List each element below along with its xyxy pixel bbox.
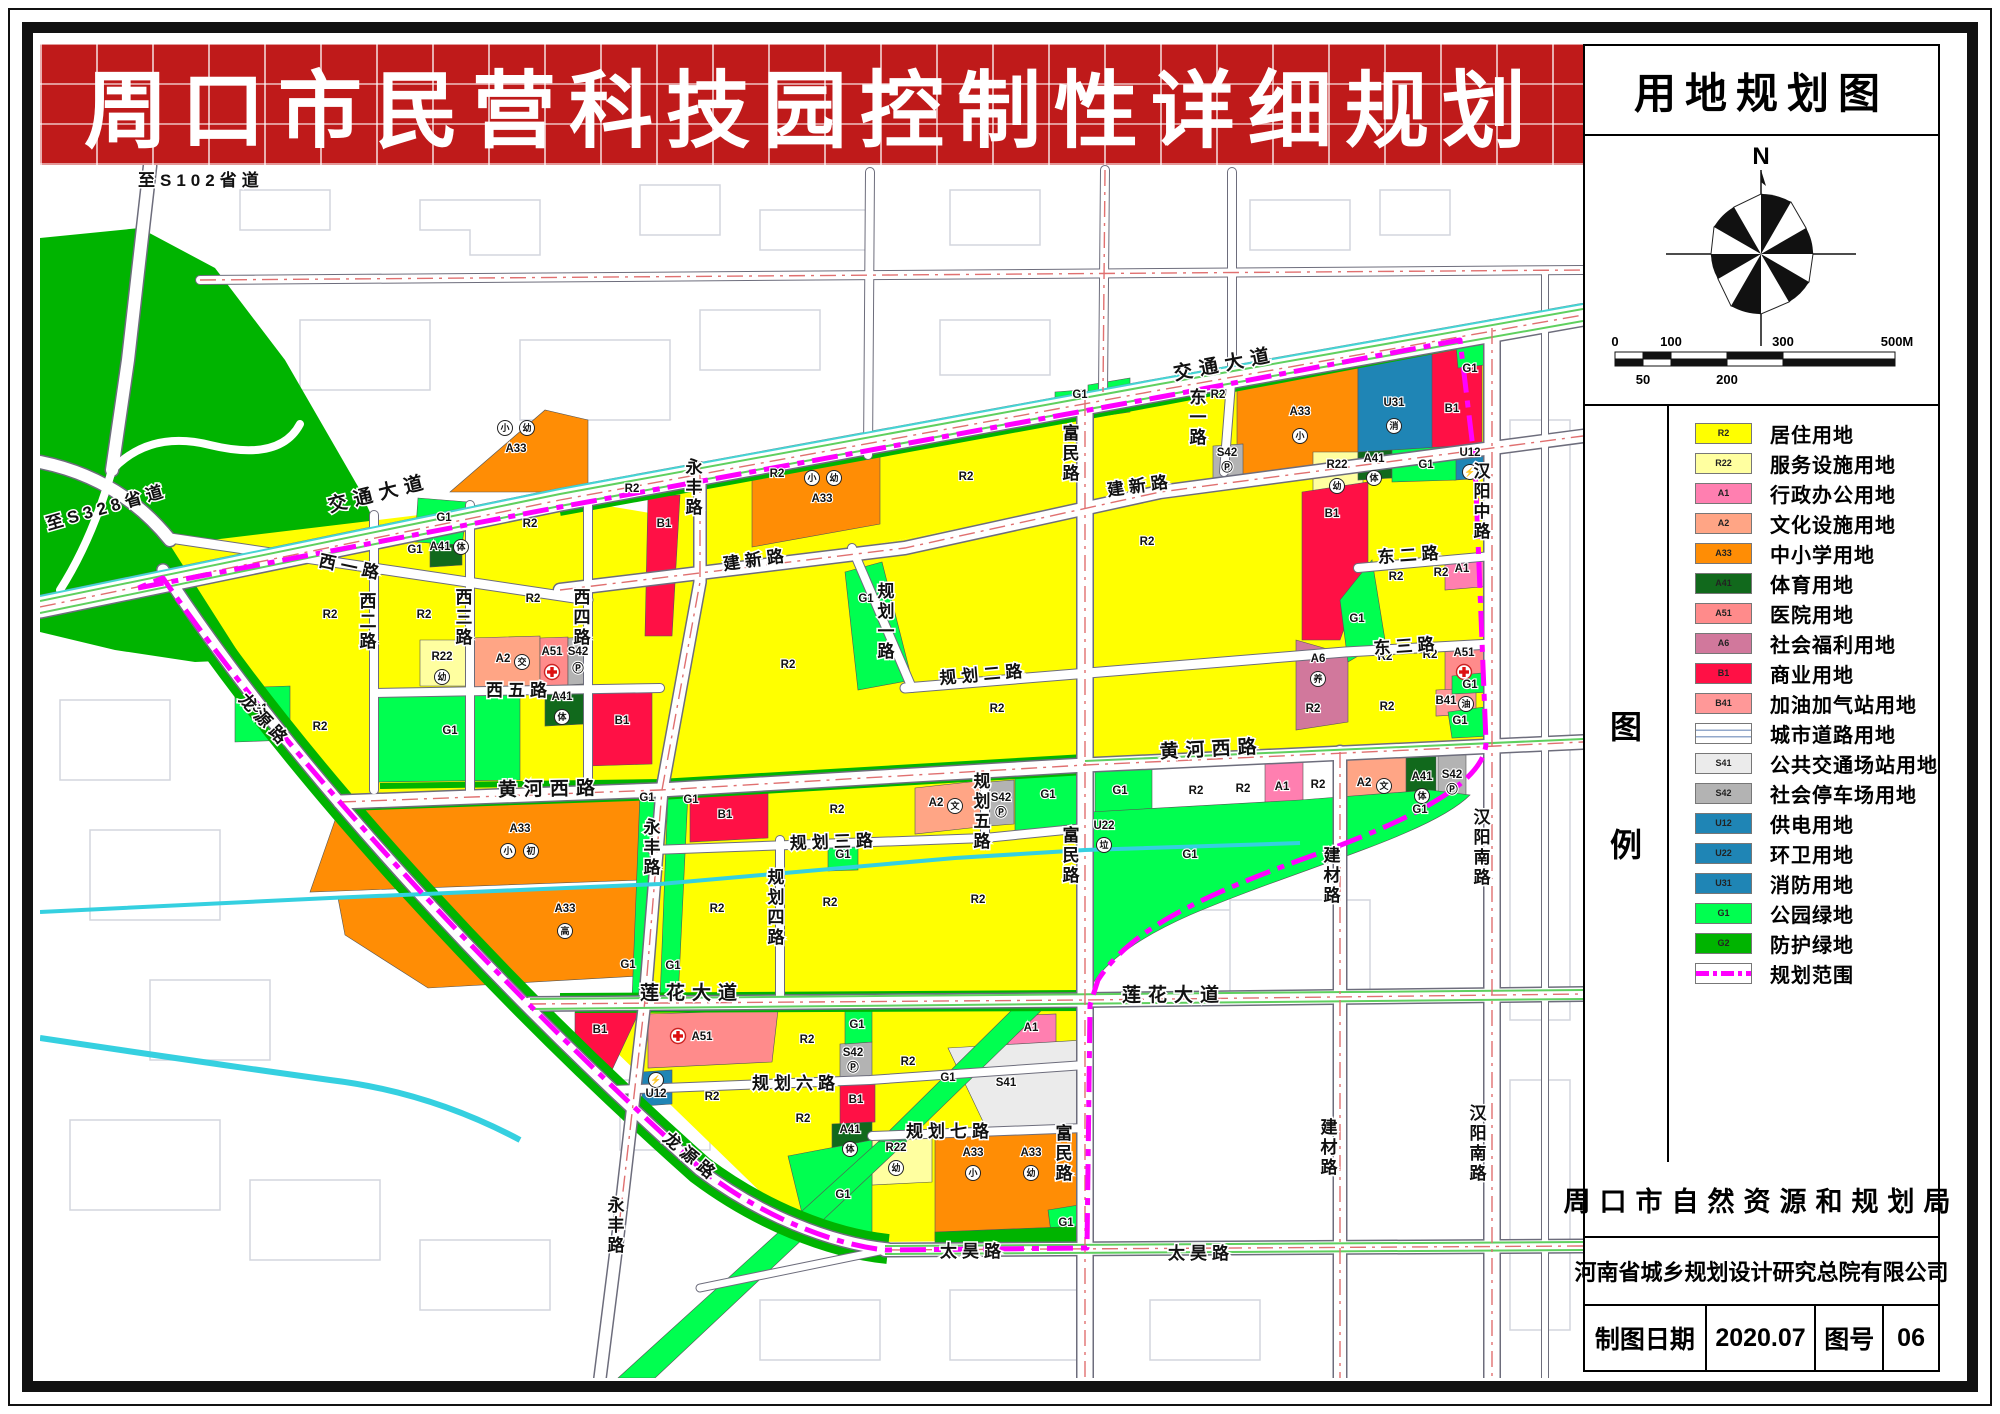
svg-text:A1: A1 [1275,781,1290,793]
legend-row: S41 公共交通场站用地 [1695,748,1938,778]
legend-swatch: A2 [1695,513,1752,534]
svg-text:Ⓟ: Ⓟ [847,1060,859,1074]
svg-text:规划一路: 规划一路 [875,582,895,662]
svg-text:A2: A2 [1357,777,1372,789]
svg-text:幼: 幼 [437,671,446,682]
svg-text:G1: G1 [1040,789,1056,801]
svg-text:体: 体 [1369,472,1379,483]
svg-text:小: 小 [499,422,509,433]
svg-text:S42: S42 [1217,447,1237,459]
svg-text:西五路: 西五路 [486,680,552,700]
legend-label: 居住用地 [1770,419,1854,448]
svg-text:体: 体 [1417,790,1427,801]
svg-text:R2: R2 [1140,536,1155,548]
svg-text:小: 小 [502,845,512,856]
legend-row: A1 行政办公用地 [1695,478,1938,508]
svg-text:富民路: 富民路 [1053,1123,1073,1184]
legend-swatch: U31 [1695,873,1752,894]
svg-text:R2: R2 [526,593,541,605]
planning-map-page: 周口市民营科技园控制性详细规划 [0,0,2000,1414]
svg-text:R2: R2 [523,518,538,530]
compass-scale-graphic: N 0 100 300 500M [1585,136,1938,402]
svg-text:200: 200 [1716,372,1738,387]
legend-label: 中小学用地 [1770,539,1875,568]
legend-label: 文化设施用地 [1770,509,1896,538]
svg-text:50: 50 [1636,372,1650,387]
svg-text:U22: U22 [1093,820,1114,832]
svg-text:B1: B1 [615,715,630,727]
svg-text:永丰路: 永丰路 [683,457,704,518]
svg-text:G1: G1 [940,1072,956,1084]
legend-title-vertical: 图 例 [1585,406,1669,1162]
svg-text:Ⓟ: Ⓟ [1221,460,1233,474]
legend-label: 供电用地 [1770,809,1854,838]
legend-code: R2 [1718,428,1730,438]
svg-text:A2: A2 [496,653,511,665]
legend-row: U22 环卫用地 [1695,838,1938,868]
svg-text:永丰路: 永丰路 [605,1195,626,1256]
legend-code: B41 [1715,698,1732,708]
legend-row: A33 中小学用地 [1695,538,1938,568]
titleblock-footer: 制图日期 2020.07 图号 06 [1585,1306,1938,1370]
svg-text:R2: R2 [417,609,432,621]
svg-text:R2: R2 [1389,571,1404,583]
legend-swatch: A51 [1695,603,1752,624]
legend-label: 公园绿地 [1770,899,1854,928]
legend-label: 社会停车场用地 [1770,779,1917,808]
scale-bar: 0 100 300 500M [1611,334,1913,387]
svg-text:B1: B1 [1445,403,1460,415]
legend-title-char-2: 例 [1610,820,1642,866]
svg-text:U12: U12 [645,1088,666,1100]
legend-code: U12 [1715,818,1732,828]
svg-text:U31: U31 [1383,397,1405,409]
svg-text:500M: 500M [1881,334,1914,349]
legend-row: A51 医院用地 [1695,598,1938,628]
svg-text:R2: R2 [1236,783,1251,795]
legend-row: G2 防护绿地 [1695,928,1938,958]
svg-text:幼: 幼 [1026,1167,1035,1178]
legend-code: A41 [1715,578,1732,588]
legend-label: 商业用地 [1770,659,1854,688]
svg-text:交: 交 [517,656,526,667]
svg-text:A41: A41 [551,691,573,703]
legend-row: 城市道路用地 [1695,718,1938,748]
legend-code: A1 [1718,488,1730,498]
svg-text:Ⓟ: Ⓟ [995,805,1007,819]
legend-row: S42 社会停车场用地 [1695,778,1938,808]
svg-text:规划五路: 规划五路 [971,772,991,852]
svg-text:富民路: 富民路 [1060,825,1080,886]
svg-text:A33: A33 [962,1147,983,1159]
page-title: 周口市民营科技园控制性详细规划 [84,44,1539,165]
legend-label: 公共交通场站用地 [1770,749,1938,778]
svg-text:A33: A33 [554,903,575,915]
legend-label: 环卫用地 [1770,839,1854,868]
legend-code: S42 [1715,788,1731,798]
svg-text:汉阳中路: 汉阳中路 [1471,462,1491,542]
compass-rose-icon [1666,170,1856,346]
svg-text:G1: G1 [1452,715,1468,727]
legend-swatch: U12 [1695,813,1752,834]
legend-code: A6 [1718,638,1730,648]
svg-text:A51: A51 [541,646,563,658]
legend-swatch: S41 [1695,753,1752,774]
legend-row: R22 服务设施用地 [1695,448,1938,478]
svg-text:A33: A33 [811,493,832,505]
svg-text:幼: 幼 [829,472,838,483]
svg-text:S41: S41 [996,1077,1017,1089]
legend-label: 服务设施用地 [1770,449,1896,478]
svg-text:建材路: 建材路 [1318,1117,1338,1178]
svg-text:G1: G1 [1058,1217,1074,1229]
svg-text:R2: R2 [800,1034,815,1046]
authority-name: 周口市自然资源和规划局 [1585,1162,1938,1238]
svg-text:A33: A33 [505,443,526,455]
svg-text:A41: A41 [429,541,451,553]
svg-text:R2: R2 [1189,785,1204,797]
legend-row: A41 体育用地 [1695,568,1938,598]
svg-text:规划四路: 规划四路 [765,868,785,948]
legend-label: 行政办公用地 [1770,479,1896,508]
svg-text:莲花大道: 莲花大道 [1122,983,1226,1006]
svg-text:G1: G1 [1182,849,1198,861]
svg-text:R2: R2 [1211,389,1226,401]
svg-text:A51: A51 [691,1031,713,1043]
svg-text:G1: G1 [436,512,452,524]
svg-text:体: 体 [845,1143,855,1154]
svg-text:幼: 幼 [891,1162,900,1173]
svg-text:G1: G1 [835,1189,851,1201]
legend-swatch: B41 [1695,693,1752,714]
svg-text:0: 0 [1611,334,1618,349]
svg-text:R2: R2 [313,721,328,733]
svg-text:G1: G1 [1462,363,1478,375]
legend-row: G1 公园绿地 [1695,898,1938,928]
svg-text:S42: S42 [991,792,1011,804]
legend-swatch: R2 [1695,423,1752,444]
legend-label: 消防用地 [1770,869,1854,898]
svg-text:G1: G1 [1462,679,1478,691]
legend-row: R2 居住用地 [1695,418,1938,448]
legend-label: 社会福利用地 [1770,629,1896,658]
svg-text:太昊路: 太昊路 [940,1241,1006,1261]
svg-text:G1: G1 [1418,459,1434,471]
legend-swatch: R22 [1695,453,1752,474]
svg-text:养: 养 [1312,673,1322,684]
svg-text:R2: R2 [830,804,845,816]
svg-text:体: 体 [557,711,567,722]
svg-text:G1: G1 [858,593,874,605]
date-value: 2020.07 [1705,1306,1815,1370]
svg-text:A33: A33 [509,823,530,835]
svg-text:A6: A6 [1311,653,1326,665]
landuse-map: G1A41体R2B1小幼A33R2R2小幼A33R2G1R2A33小S42ⓅR2… [40,165,1583,1378]
svg-text:R2: R2 [796,1113,811,1125]
svg-text:B1: B1 [1325,508,1340,520]
side-panel: 用地规划图 N 0 100 [1583,44,1940,1372]
svg-text:文: 文 [1378,780,1389,791]
svg-text:小: 小 [1294,430,1304,441]
legend-label: 规划范围 [1770,959,1854,988]
svg-text:小: 小 [806,472,816,483]
sheet-label: 图号 [1814,1306,1882,1370]
legend-code: U22 [1715,848,1732,858]
legend-label: 防护绿地 [1770,929,1854,958]
compass-scale-box: N 0 100 300 500M [1585,136,1938,406]
svg-text:S42: S42 [843,1047,863,1059]
svg-text:永丰路: 永丰路 [641,817,662,878]
svg-text:U12: U12 [1459,447,1480,459]
svg-text:东一路: 东一路 [1187,387,1207,448]
svg-text:汉阳南路: 汉阳南路 [1471,808,1491,888]
legend-swatch: A41 [1695,573,1752,594]
legend-code: G1 [1717,908,1729,918]
legend-row: B41 加油加气站用地 [1695,688,1938,718]
legend-row: A2 文化设施用地 [1695,508,1938,538]
svg-text:富民路: 富民路 [1060,423,1080,484]
map-area: G1A41体R2B1小幼A33R2R2小幼A33R2G1R2A33小S42ⓅR2… [40,165,1583,1378]
legend-code: A2 [1718,518,1730,528]
svg-text:R22: R22 [1326,459,1347,471]
date-label: 制图日期 [1585,1306,1705,1370]
svg-text:R2: R2 [823,897,838,909]
svg-text:G1: G1 [620,959,636,971]
legend-swatch: A6 [1695,633,1752,654]
svg-text:G1: G1 [407,544,423,556]
svg-text:西三路: 西三路 [453,588,473,648]
svg-text:R2: R2 [705,1091,720,1103]
legend-label: 体育用地 [1770,569,1854,598]
legend-swatch: A1 [1695,483,1752,504]
north-label: N [1752,143,1769,170]
svg-text:Ⓟ: Ⓟ [572,661,584,675]
legend-swatch [1695,963,1752,984]
svg-text:体: 体 [456,541,466,552]
svg-text:文: 文 [949,800,960,811]
legend-swatch: G1 [1695,903,1752,924]
svg-text:B1: B1 [657,518,672,530]
svg-text:至S102省道: 至S102省道 [138,170,264,190]
legend-row: 规划范围 [1695,958,1938,988]
svg-text:建材路: 建材路 [1321,845,1341,906]
svg-text:G1: G1 [665,960,681,972]
svg-text:A51: A51 [1453,647,1475,659]
legend-swatch: A33 [1695,543,1752,564]
svg-text:B41: B41 [1435,695,1457,707]
svg-text:西二路: 西二路 [357,592,377,652]
svg-text:G1: G1 [1072,389,1088,401]
legend-code: R22 [1715,458,1732,468]
svg-text:300: 300 [1772,334,1794,349]
svg-text:⚡: ⚡ [650,1074,661,1086]
svg-text:R2: R2 [990,703,1005,715]
svg-text:A1: A1 [1455,563,1470,575]
svg-text:A41: A41 [1411,771,1433,783]
legend-swatch: B1 [1695,663,1752,684]
legend-box: 图 例 R2 居住用地 R22 服务设施用地 A1 行政办公用地 A2 [1585,406,1938,1162]
svg-text:A33: A33 [1020,1147,1041,1159]
legend-row: B1 商业用地 [1695,658,1938,688]
svg-text:幼: 幼 [522,422,531,433]
svg-text:西四路: 西四路 [571,588,591,648]
svg-text:G1: G1 [1349,613,1365,625]
svg-text:规划六路: 规划六路 [752,1073,840,1093]
svg-text:A1: A1 [1024,1022,1039,1034]
svg-text:B1: B1 [593,1024,608,1036]
legend-row: A6 社会福利用地 [1695,628,1938,658]
svg-text:垃: 垃 [1099,839,1108,850]
legend-swatch [1695,723,1752,744]
svg-text:100: 100 [1660,334,1682,349]
svg-text:Ⓟ: Ⓟ [1446,782,1458,796]
legend-row: U31 消防用地 [1695,868,1938,898]
svg-text:黄河西路: 黄河西路 [498,776,602,801]
svg-text:R2: R2 [971,894,986,906]
svg-text:R2: R2 [781,659,796,671]
svg-text:A2: A2 [929,797,944,809]
svg-text:R2: R2 [625,483,640,495]
svg-text:幼: 幼 [1332,480,1341,491]
svg-text:规划七路: 规划七路 [906,1121,994,1141]
legend-label: 城市道路用地 [1770,719,1896,748]
svg-text:R2: R2 [1306,703,1321,715]
svg-text:R2: R2 [710,903,725,915]
svg-text:R2: R2 [1311,779,1326,791]
svg-text:B1: B1 [718,809,733,821]
svg-text:A33: A33 [1289,406,1310,418]
design-institute-name: 河南省城乡规划设计研究总院有限公司 [1585,1238,1938,1306]
svg-text:R2: R2 [959,471,974,483]
svg-text:R2: R2 [1434,567,1449,579]
legend-code: A33 [1715,548,1732,558]
legend-row: U12 供电用地 [1695,808,1938,838]
svg-text:G1: G1 [849,1019,865,1031]
svg-text:小: 小 [967,1167,977,1178]
svg-text:油: 油 [1461,698,1470,709]
svg-text:规划三路: 规划三路 [789,830,878,853]
svg-text:G1: G1 [683,794,699,806]
sheet-value: 06 [1882,1306,1938,1370]
svg-text:R22: R22 [885,1142,906,1154]
svg-text:消: 消 [1389,420,1398,431]
svg-text:G1: G1 [1112,785,1128,797]
svg-text:高: 高 [560,925,569,936]
legend-code: A51 [1715,608,1732,618]
legend-swatch: S42 [1695,783,1752,804]
legend-label: 加油加气站用地 [1770,689,1917,718]
legend-code: U31 [1715,878,1732,888]
svg-text:R2: R2 [1380,701,1395,713]
svg-text:汉阳南路: 汉阳南路 [1467,1104,1487,1184]
svg-text:R2: R2 [323,609,338,621]
svg-text:A41: A41 [1363,453,1385,465]
svg-text:G1: G1 [1412,804,1428,816]
svg-text:A41: A41 [839,1124,861,1136]
legend-list: R2 居住用地 R22 服务设施用地 A1 行政办公用地 A2 文化设施用地 A… [1669,406,1938,1162]
svg-text:B1: B1 [849,1094,864,1106]
legend-swatch: U22 [1695,843,1752,864]
svg-text:R2: R2 [901,1056,916,1068]
svg-text:G1: G1 [639,792,655,804]
svg-text:G1: G1 [442,725,458,737]
panel-title: 用地规划图 [1585,46,1938,136]
legend-title-char-1: 图 [1610,702,1642,748]
legend-code: B1 [1718,668,1730,678]
legend-code: G2 [1717,938,1729,948]
svg-text:R2: R2 [770,468,785,480]
svg-text:R22: R22 [431,651,452,663]
legend-swatch: G2 [1695,933,1752,954]
svg-text:初: 初 [526,845,535,856]
title-banner: 周口市民营科技园控制性详细规划 [40,44,1583,165]
legend-label: 医院用地 [1770,599,1854,628]
svg-text:太昊路: 太昊路 [1168,1243,1234,1263]
svg-text:S42: S42 [1442,769,1462,781]
svg-text:莲花大道: 莲花大道 [640,981,744,1004]
legend-code: S41 [1715,758,1731,768]
